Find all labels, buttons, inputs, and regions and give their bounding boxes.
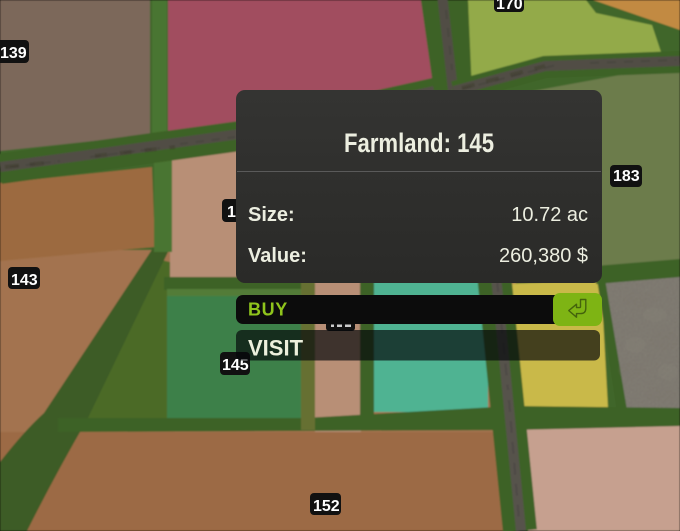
svg-text:152: 152 xyxy=(313,498,340,515)
svg-text:Value:: Value: xyxy=(248,245,307,267)
svg-text:Size:: Size: xyxy=(248,204,295,226)
svg-text:143: 143 xyxy=(11,272,38,289)
svg-text:170: 170 xyxy=(496,0,523,13)
svg-text:260,380 $: 260,380 $ xyxy=(499,245,588,267)
svg-text:10.72 ac: 10.72 ac xyxy=(511,204,588,226)
svg-text:Farmland: 145: Farmland: 145 xyxy=(344,128,494,158)
svg-text:BUY: BUY xyxy=(248,300,288,320)
svg-text:183: 183 xyxy=(613,168,640,185)
svg-text:139: 139 xyxy=(0,45,27,62)
svg-text:VISIT: VISIT xyxy=(248,336,304,361)
